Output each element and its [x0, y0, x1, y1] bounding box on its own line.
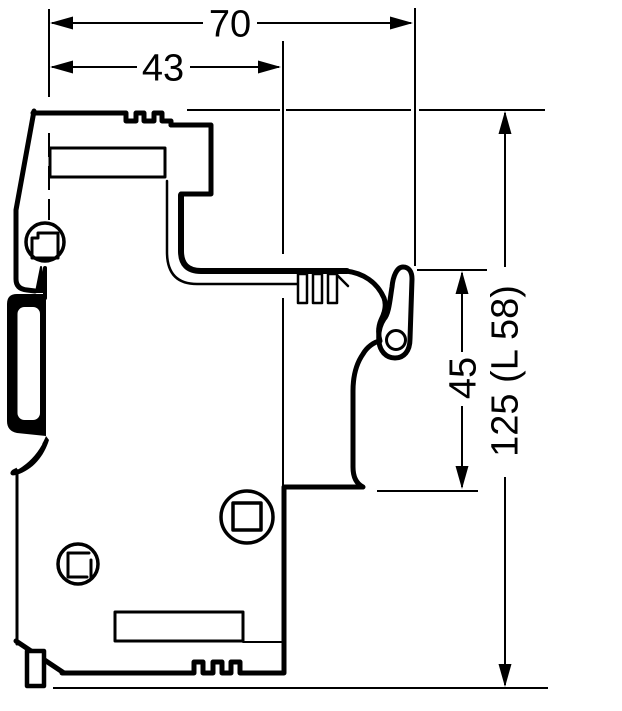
busbar-tooth	[328, 274, 337, 303]
device-outline	[7, 111, 412, 686]
device-bottom-edge	[62, 487, 362, 673]
din-rail-channel-slot	[18, 307, 41, 420]
dimension-label-70: 70	[209, 4, 251, 46]
arrow-125-up-icon	[499, 111, 512, 134]
busbar-teeth	[298, 274, 337, 303]
busbar-tooth	[298, 274, 307, 303]
arrow-45-down-icon	[456, 466, 469, 489]
dimension-label-45: 45	[443, 357, 485, 399]
bottom-foot	[27, 651, 44, 686]
label-field-bottom	[115, 612, 243, 641]
arrow-125-down-icon	[499, 664, 512, 687]
fixing-screw-circle	[221, 491, 273, 543]
busbar-tooth	[313, 274, 322, 303]
arrow-70-right-icon	[390, 17, 413, 30]
drawing-canvas: 70 43 45 125 (L 58)	[0, 0, 622, 711]
spring-clip-claw	[10, 436, 49, 475]
dimension-lines	[52, 23, 505, 685]
arm-end-step	[337, 275, 348, 286]
label-field-top	[50, 148, 165, 177]
terminal-box	[171, 125, 211, 194]
arrow-45-up-icon	[456, 271, 469, 294]
connection-arm	[181, 195, 347, 271]
dimension-arrowheads	[50, 17, 512, 688]
dimension-label-125: 125 (L 58)	[485, 285, 527, 457]
dimension-drawing-svg: 70 43 45 125 (L 58)	[0, 0, 622, 711]
sealing-eye-circle	[387, 331, 406, 350]
extension-lines	[49, 8, 548, 688]
device-top-edge	[33, 113, 171, 125]
arrow-70-left-icon	[50, 17, 73, 30]
device-right-contour	[346, 271, 385, 487]
dimension-label-43: 43	[142, 48, 184, 90]
arrow-43-right-icon	[258, 61, 281, 74]
device-left-edge	[16, 111, 35, 291]
arrow-43-left-icon	[50, 61, 73, 74]
